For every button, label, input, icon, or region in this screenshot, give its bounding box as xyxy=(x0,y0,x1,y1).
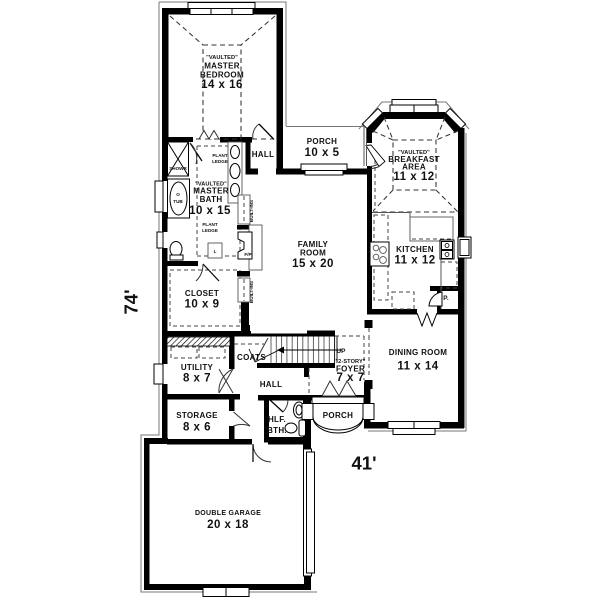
svg-text:7 x 7: 7 x 7 xyxy=(336,372,364,384)
svg-text:KITCHEN: KITCHEN xyxy=(396,245,434,254)
svg-text:BUILT-INS: BUILT-INS xyxy=(249,200,254,222)
svg-text:HALL: HALL xyxy=(260,380,283,389)
svg-text:14 x 16: 14 x 16 xyxy=(201,79,243,91)
svg-text:15 x 20: 15 x 20 xyxy=(292,258,334,270)
svg-text:DINING ROOM: DINING ROOM xyxy=(389,348,447,357)
svg-text:10 x 15: 10 x 15 xyxy=(189,205,231,217)
svg-text:10 x 5: 10 x 5 xyxy=(305,147,340,159)
svg-text:BTH.: BTH. xyxy=(267,426,287,435)
svg-text:O: O xyxy=(176,192,180,197)
svg-text:P.: P. xyxy=(443,295,449,302)
svg-text:PORCH: PORCH xyxy=(323,411,353,420)
svg-text:"VAULTED": "VAULTED" xyxy=(206,55,238,61)
svg-text:PORCH: PORCH xyxy=(307,137,337,146)
svg-text:L: L xyxy=(214,249,217,254)
svg-text:74': 74' xyxy=(121,290,142,315)
svg-text:UTILITY: UTILITY xyxy=(181,363,214,372)
svg-text:11 x 14: 11 x 14 xyxy=(397,361,438,373)
svg-text:20 x 18: 20 x 18 xyxy=(207,519,249,531)
svg-text:HALL: HALL xyxy=(252,150,275,159)
svg-text:MASTER: MASTER xyxy=(204,62,240,71)
svg-text:10 x 9: 10 x 9 xyxy=(185,299,220,311)
svg-text:8 x 7: 8 x 7 xyxy=(183,373,211,385)
svg-text:CLOSET: CLOSET xyxy=(185,289,219,298)
svg-text:HLF.: HLF. xyxy=(268,415,286,424)
svg-text:STORAGE: STORAGE xyxy=(176,411,218,420)
svg-text:8 x 6: 8 x 6 xyxy=(183,422,211,434)
svg-text:LEDGE: LEDGE xyxy=(212,159,228,164)
svg-text:UP: UP xyxy=(336,348,346,355)
svg-text:41': 41' xyxy=(352,453,377,474)
svg-text:LEDGE: LEDGE xyxy=(202,228,218,233)
svg-text:TUB: TUB xyxy=(173,199,183,204)
svg-text:11 x 12: 11 x 12 xyxy=(394,255,435,267)
svg-text:11 x 12: 11 x 12 xyxy=(393,171,434,183)
svg-text:SHOWR: SHOWR xyxy=(169,166,187,171)
svg-text:DOUBLE GARAGE: DOUBLE GARAGE xyxy=(195,510,261,517)
svg-text:COATS: COATS xyxy=(237,353,266,362)
svg-text:F/P: F/P xyxy=(244,252,251,257)
svg-text:BUILT-INS: BUILT-INS xyxy=(249,281,254,303)
svg-text:PLANT: PLANT xyxy=(212,153,228,158)
svg-text:ROOM: ROOM xyxy=(300,249,326,258)
svg-text:BATH: BATH xyxy=(200,195,223,204)
svg-text:PLANT: PLANT xyxy=(202,222,218,227)
